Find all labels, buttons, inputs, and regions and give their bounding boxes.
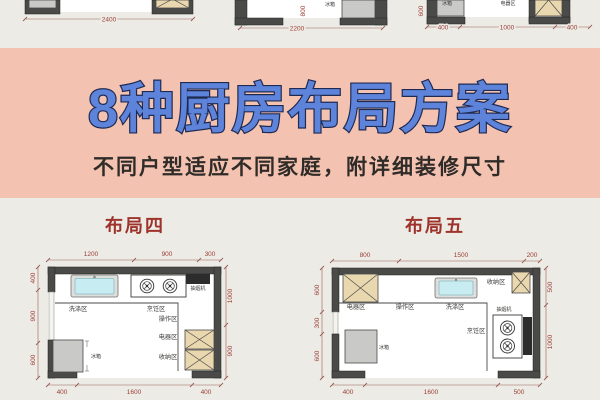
floorplan-layout4: 1200 900 300 400 900 600 1000 900 400 16… <box>28 243 283 400</box>
l4-label-wash: 洗涤区 <box>69 305 88 313</box>
l5-label-prep: 操作区 <box>396 303 415 311</box>
plan-c-cabinet <box>535 0 562 16</box>
plan-c-dim-2: 400 <box>567 25 578 32</box>
plan-b-wall-bottom-right <box>340 18 387 25</box>
l5-bottom-dim-2: 500 <box>514 389 525 396</box>
plan-b-wall-bottom-left <box>235 18 283 25</box>
l5-label-wash: 洗涤区 <box>446 303 465 311</box>
l4-wall-right <box>214 267 221 378</box>
plan-b-dim-text: 2200 <box>290 26 305 33</box>
fridge-body <box>53 340 83 372</box>
l4-label-cook: 烹饪区 <box>147 305 166 313</box>
l5-top-dim-1: 1500 <box>454 252 469 259</box>
plan-a-dim-text: 2400 <box>102 17 117 24</box>
plan-b-fridge-label: 冰箱 <box>325 1 335 8</box>
plan-b-fridge <box>342 0 375 18</box>
section-title-layout4: 布局四 <box>55 212 215 238</box>
l4-bottom-dim-0: 400 <box>57 389 68 396</box>
l5-cabinet-appliance <box>343 274 378 302</box>
l4-left-dim-2: 600 <box>30 354 37 365</box>
sink-faucet <box>93 276 96 279</box>
l4-wall-top <box>48 267 221 274</box>
l5-bottom-dim-1: 1600 <box>424 389 439 396</box>
plan-a-fridge <box>29 0 56 8</box>
l4-range-hood <box>186 274 210 284</box>
stove-burner <box>501 339 515 353</box>
l4-top-dim-1: 900 <box>162 251 173 258</box>
l4-left-dim-1: 900 <box>30 310 37 321</box>
l4-right-dim-1: 900 <box>227 345 234 356</box>
l5-label-appliance: 电器区 <box>347 303 366 311</box>
l4-wall-bottom-right <box>192 371 221 378</box>
l5-wall-bottom-right <box>498 371 540 378</box>
l4-right-dim-0: 1000 <box>227 288 234 303</box>
plan-c-dim-0: 400 <box>438 25 449 32</box>
l4-top-dim-0: 1200 <box>84 251 99 258</box>
l4-label-storage: 收纳区 <box>159 353 178 361</box>
l5-hood-label: 抽烟机 <box>496 306 511 313</box>
l5-left-dim-0: 600 <box>314 284 321 295</box>
l5-label-cook: 烹饪区 <box>467 327 486 335</box>
l4-wall-left-upper <box>48 267 55 292</box>
l5-wall-left-upper <box>332 268 339 312</box>
stove-body <box>131 275 186 297</box>
strip-plan-a: 2400 <box>23 0 195 24</box>
plan-c-side-dim: 600 <box>418 5 425 16</box>
l5-bottom-dim-0: 400 <box>343 389 354 396</box>
l5-fridge-label: 冰箱 <box>379 344 389 351</box>
page-title: 8种厨房布局方案 <box>0 64 600 143</box>
fridge-body <box>345 330 377 363</box>
l5-right-dim-0: 500 <box>547 281 554 292</box>
l5-cabinet-storage <box>512 272 530 293</box>
stove-burner <box>501 321 515 335</box>
l4-label-appliance: 电器区 <box>159 333 178 341</box>
l5-top-dim-0: 800 <box>360 252 371 259</box>
plan-c-wall-bottom-right <box>529 17 570 24</box>
plan-c-dim-1: 1000 <box>500 25 515 32</box>
plan-c-wall-bottom-left <box>427 17 465 24</box>
plan-c-fridge-label: 冰箱 <box>442 0 452 7</box>
page-subtitle: 不同户型适应不同家庭，附详细装修尺寸 <box>0 151 600 181</box>
l4-left-dim-0: 400 <box>30 272 37 283</box>
top-strip-plans: 2400 冰箱 800 2200 冰箱 电 <box>0 0 600 48</box>
l4-window <box>49 292 54 340</box>
sink-basin <box>75 279 114 295</box>
plan-b-inner-dim: 800 <box>300 5 307 16</box>
l4-fridge-label: 冰箱 <box>91 353 101 360</box>
sink-faucet <box>455 279 457 281</box>
l5-wall-right <box>533 268 540 378</box>
stove-burner <box>163 279 177 293</box>
l4-bottom-dim-1: 1600 <box>127 389 142 396</box>
l4-stove <box>131 275 186 297</box>
l4-hood-label: 抽烟机 <box>190 285 205 292</box>
sink-basin <box>439 281 473 295</box>
l5-top-dim-2: 200 <box>527 252 538 259</box>
l5-label-storage: 收纳区 <box>487 278 506 286</box>
l4-label-prep: 操作区 <box>159 315 178 323</box>
l5-range-hood <box>523 317 532 355</box>
l5-left-dim-1: 300 <box>314 317 321 328</box>
l5-sink <box>435 278 477 298</box>
l5-right-dim-1: 1000 <box>547 334 554 349</box>
l5-fridge <box>345 330 377 363</box>
l4-cabinet-appliance <box>185 330 214 349</box>
strip-plan-c: 冰箱 电器区 600 400 1000 400 <box>418 0 592 32</box>
plan-c-cabinet-label: 电器区 <box>500 0 515 7</box>
infographic: 2400 冰箱 800 2200 冰箱 电 <box>0 0 600 400</box>
l4-sink <box>71 275 118 297</box>
strip-plan-b: 冰箱 800 2200 <box>235 0 387 33</box>
stove-burner <box>140 279 154 293</box>
l4-cabinet-storage <box>185 350 214 370</box>
floorplan-layout5: 800 1500 200 600 300 600 500 1000 400 16… <box>303 243 600 400</box>
l5-stove <box>493 315 522 358</box>
l5-left-dim-2: 600 <box>314 350 321 361</box>
l4-top-dim-2: 300 <box>205 251 216 258</box>
l4-bottom-dim-2: 400 <box>201 389 212 396</box>
l5-window <box>333 312 338 334</box>
section-title-layout5: 布局五 <box>355 212 515 238</box>
plan-a-cabinet <box>156 0 189 8</box>
l5-wall-bottom-left <box>332 371 365 378</box>
